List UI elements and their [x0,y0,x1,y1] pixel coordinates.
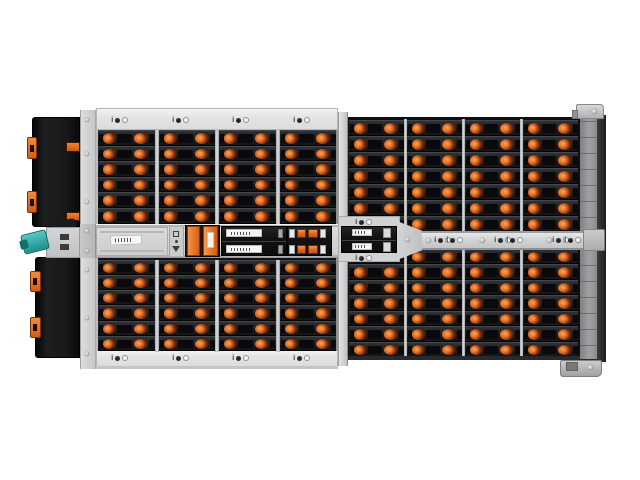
drive-latch-icon [103,149,116,160]
drive-bay [523,311,578,327]
drive-bay [523,280,578,296]
drive-bay [159,177,216,193]
drive-bay [523,200,578,216]
bay-recess [149,340,154,348]
bracket-slot [60,234,69,240]
drive-latch-icon [558,123,572,134]
led-ring-icon [183,355,189,361]
drive-latch-icon [558,252,572,263]
bay-recess [299,181,314,190]
drive-latch-icon [316,339,330,349]
bay-recess [299,340,314,348]
drive-bay [98,208,155,224]
led-ring-icon [243,117,249,123]
screw-icon [480,238,485,243]
bay-recess [484,124,498,133]
handle-label [207,232,214,248]
bay-recess [238,150,253,159]
rail-line [580,153,597,154]
drive-bay [523,295,578,311]
drive-latch-icon [195,180,209,191]
bay-recess [117,134,132,143]
connector-orange [308,229,318,238]
center-latch [383,228,391,238]
drive-latch-icon [224,164,237,175]
bay-recess [160,309,164,317]
bay-recess [238,134,253,143]
bay-recess [331,294,336,302]
bay-recess [331,340,336,348]
indicator-letter: i [293,117,295,124]
indicator-letter: i [552,237,554,244]
drive-bay [465,168,520,184]
bay-recess [573,268,578,277]
drive-latch-icon [384,298,398,309]
drive-bay [407,264,462,280]
indicator-letter: i [355,219,357,226]
bay-recess [149,134,154,143]
led-indicator-icon: i [446,236,470,244]
drive-bay [98,275,155,290]
drive-latch-icon [164,293,177,303]
drive-bay [98,305,155,320]
drive-bay [219,305,276,320]
drive-bay [219,321,276,336]
bay-recess [238,294,253,302]
bay-recess [331,165,336,174]
drive-latch-icon [384,329,398,340]
drive-latch-icon [103,339,116,349]
iom-latch [278,229,283,238]
drive-latch-icon [255,308,269,318]
drive-bay [349,168,404,184]
bay-recess [573,315,578,324]
drive-bay [349,280,404,296]
led-indicator-icon: i [506,236,530,244]
drive-latch-icon [354,203,367,214]
drive-latch-icon [442,171,456,182]
drive-latch-icon [354,171,367,182]
panel-glyph-dot-icon [175,240,178,243]
drive-latch-icon [412,171,425,182]
bay-recess [117,165,132,174]
drive-latch-icon [134,324,148,334]
bay-recess [484,346,498,355]
bay-recess [178,134,193,143]
bay-recess [573,188,578,197]
iom-label [226,229,262,237]
bay-recess [160,134,164,143]
drive-latch-icon [134,293,148,303]
rail-line [580,185,597,186]
drive-latch-icon [442,283,456,294]
bay-recess [542,253,556,262]
bay-recess [426,140,440,149]
drive-bay [280,290,337,305]
bay-recess [238,181,253,190]
connector-key [289,245,295,254]
bay-recess [573,346,578,355]
rail-line [580,313,597,314]
led-dot-icon [115,356,120,361]
drive-bay [407,120,462,136]
drive-bay [98,161,155,177]
drive-latch-icon [528,139,541,150]
drive-latch-icon [316,164,330,175]
drive-latch-icon [134,308,148,318]
drive-latch-icon [195,324,209,334]
screw-icon [85,152,89,156]
bay-recess [426,284,440,293]
bay-recess [331,196,336,205]
drive-bay [280,161,337,177]
drive-bay [523,249,578,265]
drive-latch-icon [470,155,483,166]
led-dot-icon [510,238,515,243]
bay-recess [270,165,275,174]
drive-bay [465,184,520,200]
led-indicator-icon: i [232,354,256,362]
drive-latch-icon [528,187,541,198]
bay-recess [542,330,556,339]
bay-recess [160,196,164,205]
led-ring-icon [517,237,523,243]
bay-recess [149,196,154,205]
io-bracket [46,227,80,258]
bay-recess [573,253,578,262]
drive-latch-icon [134,180,148,191]
bay-recess [270,196,275,205]
led-dot-icon [176,356,181,361]
drive-latch-icon [558,314,572,325]
screw-icon [426,238,431,243]
drive-latch-icon [224,278,237,288]
drive-latch-icon [285,293,298,303]
led-dot-icon [236,118,241,123]
column-divider [155,260,159,352]
drive-latch-icon [470,203,483,214]
drive-latch-icon [470,123,483,134]
bay-recess [117,279,132,287]
drive-bay [159,290,216,305]
bay-recess [573,284,578,293]
drive-bay [465,326,520,342]
rail-line [580,121,597,122]
storage-enclosure-photo: iiiiiiiiiiiiiiii [0,0,640,480]
iom-latch [278,245,283,254]
drive-latch-icon [285,211,298,222]
bay-recess [238,325,253,333]
drive-latch-icon [470,314,483,325]
connector-orange [297,245,306,254]
drive-latch-icon [134,164,148,175]
drive-latch-icon [164,180,177,191]
drive-latch-icon [528,283,541,294]
drive-latch-icon [442,267,456,278]
bay-recess [210,264,215,272]
drive-latch-icon [285,278,298,288]
drive-latch-icon [412,203,425,214]
drive-latch-icon [558,219,572,230]
bay-recess [542,188,556,197]
bay-recess [484,172,498,181]
screw-icon [85,249,89,253]
drive-bay [280,321,337,336]
bay-recess [368,124,382,133]
drive-latch-icon [470,219,483,230]
drive-bay [280,305,337,320]
bay-recess [331,181,336,190]
drive-latch-icon [384,123,398,134]
rail-line [580,329,597,330]
indicator-letter: i [494,237,496,244]
drive-bay [349,264,404,280]
bay-recess [117,340,132,348]
drive-bay [159,208,216,224]
rail-line [580,345,597,346]
drive-latch-icon [384,139,398,150]
bay-recess [426,188,440,197]
drive-latch-icon [500,139,514,150]
bay-recess [368,188,382,197]
led-ring-icon [183,117,189,123]
rail-line [580,217,597,218]
bay-recess [149,279,154,287]
bay-recess [210,279,215,287]
drive-latch-icon [316,133,330,144]
drive-latch-icon [255,133,269,144]
bay-recess [178,196,193,205]
drive-latch-icon [500,203,514,214]
bay-recess [484,220,498,229]
drive-latch-icon [103,195,116,206]
drive-latch-icon [224,211,237,222]
rail-line [580,169,597,170]
bay-recess [149,181,154,190]
drive-latch-icon [558,139,572,150]
drive-latch-icon [354,283,367,294]
drive-bay [465,120,520,136]
indicator-letter: i [172,355,174,362]
drive-bay [349,200,404,216]
drive-bay [465,311,520,327]
drive-bay [523,326,578,342]
drive-latch-icon [412,329,425,340]
indicator-letter: i [232,117,234,124]
label-print [355,245,365,248]
led-dot-icon [438,238,443,243]
indicator-letter: i [232,355,234,362]
led-ring-icon [304,117,310,123]
bay-recess [210,134,215,143]
drive-bay [523,120,578,136]
drive-latch-icon [412,267,425,278]
screw-icon [588,365,593,370]
drive-bay [98,192,155,208]
bay-recess [484,253,498,262]
drive-latch-icon [103,164,116,175]
bay-recess [210,212,215,221]
screw-icon [85,268,89,272]
bay-recess [542,140,556,149]
drive-bay [465,280,520,296]
led-dot-icon [359,256,364,261]
drive-bay [523,264,578,280]
drive-bay [219,146,276,162]
drive-latch-icon [103,293,116,303]
bay-recess [331,309,336,317]
drive-latch-icon [412,187,425,198]
drive-latch-icon [224,293,237,303]
drive-latch-icon [558,155,572,166]
bay-recess [270,294,275,302]
led-indicator-icon: i [172,116,196,124]
drive-latch-icon [195,339,209,349]
bay-recess [210,325,215,333]
bay-recess [270,134,275,143]
bay-recess [160,165,164,174]
indicator-letter: i [506,237,508,244]
rail-line [580,137,597,138]
bay-recess [299,212,314,221]
center-row-divider [342,240,396,241]
bay-recess [484,315,498,324]
drive-bay [465,152,520,168]
iom-row-divider [222,241,286,242]
bay-recess [160,212,164,221]
drive-bay [219,130,276,146]
bay-recess [484,330,498,339]
drive-latch-icon [224,324,237,334]
drive-bay [349,326,404,342]
drive-latch-icon [316,278,330,288]
drive-latch-icon [134,263,148,273]
bay-recess [542,299,556,308]
screw-icon [592,109,597,114]
bay-recess [368,284,382,293]
indicator-letter: i [564,237,566,244]
connector-key [320,229,326,238]
psu-module-bottom [35,257,80,358]
bay-recess [368,156,382,165]
drive-bay [465,295,520,311]
bay-recess [573,330,578,339]
led-indicator-icon: i [111,116,135,124]
bay-recess [117,325,132,333]
drive-latch-icon [255,149,269,160]
bay-recess [238,279,253,287]
drive-bay [523,184,578,200]
drive-latch-icon [470,267,483,278]
drive-bay [98,146,155,162]
bay-recess [178,264,193,272]
drive-latch-icon [558,267,572,278]
drive-bay [280,208,337,224]
drive-latch-icon [255,263,269,273]
bay-recess [270,279,275,287]
rack-ear-top [576,104,604,119]
drive-latch-icon [164,263,177,273]
bay-recess [331,279,336,287]
bay-recess [299,150,314,159]
bay-recess [484,268,498,277]
bay-recess [270,181,275,190]
bay-recess [238,264,253,272]
drive-latch-icon [500,267,514,278]
drive-bay [465,136,520,152]
release-handle-bar [187,226,200,256]
iom-label [226,245,262,253]
bay-recess [270,309,275,317]
drive-latch-icon [134,278,148,288]
bay-recess [149,165,154,174]
bay-recess [210,294,215,302]
drive-latch-icon [164,278,177,288]
drive-latch-icon [195,211,209,222]
bay-recess [281,294,285,302]
drive-latch-icon [354,123,367,134]
drive-latch-icon [528,203,541,214]
drive-latch-icon [500,252,514,263]
drive-latch-icon [442,298,456,309]
psu-clip-slot [33,278,37,285]
drive-latch-icon [384,314,398,325]
column-divider [215,130,219,224]
led-dot-icon [297,356,302,361]
bay-recess [178,279,193,287]
drive-latch-icon [224,133,237,144]
bay-recess [178,150,193,159]
bay-recess [542,284,556,293]
bay-recess [542,124,556,133]
bay-recess [117,309,132,317]
drive-bay [98,321,155,336]
bay-recess [238,165,253,174]
drive-latch-icon [285,339,298,349]
bay-recess [426,124,440,133]
drive-bay [280,130,337,146]
drive-bay [219,336,276,351]
bay-recess [281,325,285,333]
led-dot-icon [297,118,302,123]
drive-bay [465,342,520,358]
connector-key [289,229,295,238]
drive-latch-icon [255,278,269,288]
label-print [355,231,365,234]
bay-recess [368,140,382,149]
bay-recess [160,181,164,190]
drive-latch-icon [442,139,456,150]
drive-latch-icon [528,219,541,230]
drive-latch-icon [164,149,177,160]
drive-latch-icon [103,308,116,318]
drive-bay [523,168,578,184]
indicator-letter: i [293,355,295,362]
bay-recess [238,196,253,205]
drive-latch-icon [442,252,456,263]
drive-latch-icon [384,267,398,278]
drive-latch-icon [412,123,425,134]
drive-latch-icon [528,123,541,134]
bay-recess [178,325,193,333]
bay-recess [270,150,275,159]
bay-recess [117,150,132,159]
drive-bay [159,161,216,177]
drive-latch-icon [164,339,177,349]
bay-recess [573,220,578,229]
bay-recess [573,124,578,133]
drive-latch-icon [384,203,398,214]
